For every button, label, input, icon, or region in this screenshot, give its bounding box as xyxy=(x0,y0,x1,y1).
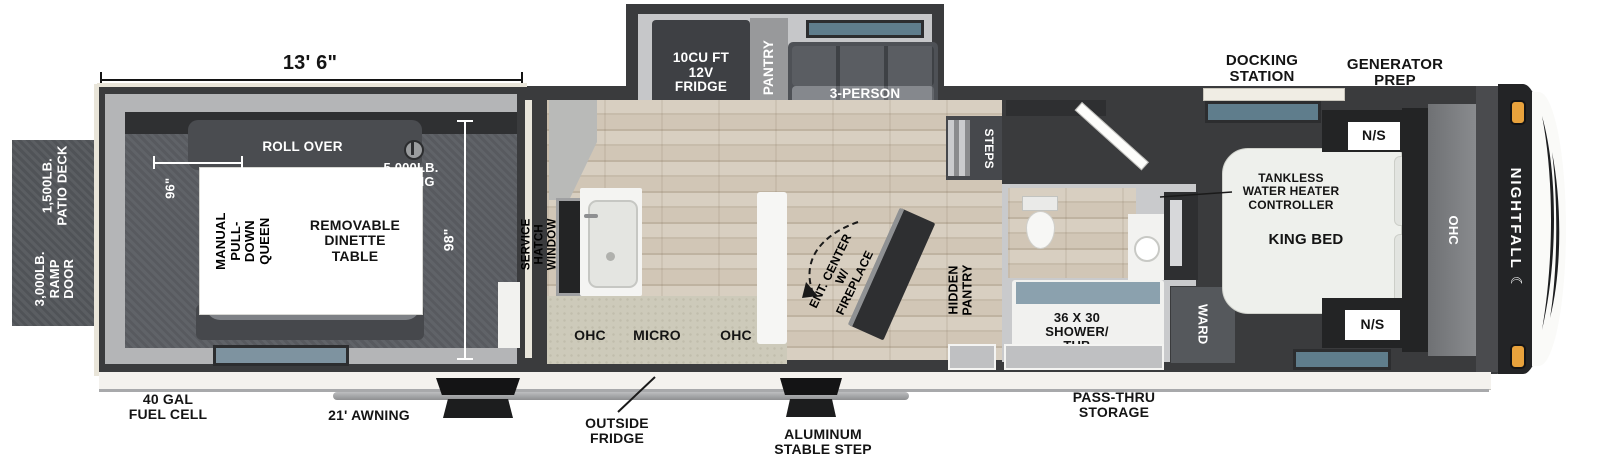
king-bed-label: KING BED xyxy=(1248,230,1364,250)
marker-light-top xyxy=(1510,100,1526,125)
fuel-cell-label: 40 GAL FUEL CELL xyxy=(110,390,226,424)
stable-step-upper xyxy=(780,378,842,395)
tankless-label: TANKLESS WATER HEATER CONTROLLER xyxy=(1228,170,1354,214)
micro-label: MICRO xyxy=(624,326,690,346)
garage-width-dimension: 98" xyxy=(436,215,462,265)
d-ring-icon-bar xyxy=(411,141,414,155)
vanity-sink-bowl xyxy=(1134,236,1160,262)
sink-drain xyxy=(606,252,615,261)
toilet-tank xyxy=(1022,196,1058,211)
pass-thru-compartment-left xyxy=(948,344,996,370)
bathroom-top-wall xyxy=(1002,176,1200,184)
patio-deck-label: 1,500LB. PATIO DECK xyxy=(14,142,96,230)
bedroom-ohc-label: OHC xyxy=(1428,104,1478,356)
garage-rear-window xyxy=(213,345,349,366)
garage-width-tick-top xyxy=(457,120,473,122)
dinette-label: REMOVABLE DINETTE TABLE xyxy=(295,196,415,286)
kitchen-island xyxy=(757,192,787,344)
nose-swoosh-graphics xyxy=(1532,92,1566,366)
steps-label: STEPS xyxy=(976,120,1000,178)
bed-width-dimension: 96" xyxy=(160,168,182,208)
garage-length-dimension: 13' 6" xyxy=(230,52,390,74)
marker-light-bottom xyxy=(1510,344,1526,369)
storage-step-lower xyxy=(443,399,513,418)
bed-headboard xyxy=(1402,108,1428,352)
bed-width-tick-left xyxy=(153,156,155,169)
queen-bed-label: MANUAL PULL-DOWN QUEEN xyxy=(204,170,282,312)
bed-width-tick-right xyxy=(241,156,243,169)
hall-bedroom-wall xyxy=(1148,96,1156,186)
entry-steps-treads xyxy=(948,120,970,176)
bedroom-window-top xyxy=(1205,101,1321,123)
pass-thru-label: PASS-THRU STORAGE xyxy=(1048,388,1180,422)
floorplan-diagram: 13' 6" 1,500LB. PATIO DECK 3,000LB. RAMP… xyxy=(0,0,1600,458)
moon-icon: ☾ xyxy=(1507,275,1524,290)
pass-thru-compartment-right xyxy=(1004,344,1164,370)
generator-prep-label: GENERATOR PREP xyxy=(1332,55,1458,91)
hidden-pantry-label: HIDDEN PANTRY xyxy=(942,238,980,342)
docking-station-label: DOCKING STATION xyxy=(1198,52,1326,86)
bed-width-dim-line xyxy=(153,162,243,164)
ramp-door-label: 3,000LB. RAMP DOOR xyxy=(14,234,96,324)
garage-width-tick-bottom xyxy=(457,358,473,360)
storage-step-upper xyxy=(436,378,520,395)
brand-name: NIGHTFALL xyxy=(1507,167,1524,269)
awning-label: 21' AWNING xyxy=(300,407,438,425)
ohc-left-label: OHC xyxy=(566,326,614,346)
slideout-window xyxy=(806,20,924,38)
sofa-back-cushions xyxy=(792,46,934,86)
d-ring-icon xyxy=(404,140,424,160)
dimension-line xyxy=(100,79,523,81)
body-cream-trim-left xyxy=(94,84,99,376)
garage-side-door xyxy=(498,282,520,348)
roll-over-bottom-label: ROLL OVER xyxy=(235,296,365,314)
brand-logo: NIGHTFALL☾ xyxy=(1500,104,1530,354)
docking-station-panel xyxy=(1203,88,1345,101)
service-hatch-window-label: SERVICE HATCH WINDOW xyxy=(524,196,556,292)
ent-center-label: ENT. CENTER W/ FIREPLACE xyxy=(800,222,886,332)
refrigerator-label: 10CU FT 12V FRIDGE xyxy=(652,38,750,108)
ohc-right-label: OHC xyxy=(712,326,760,346)
ns-bottom-label: N/S xyxy=(1345,310,1400,340)
vanity-mirror xyxy=(1170,200,1182,266)
outside-fridge-label: OUTSIDE FRIDGE xyxy=(568,414,666,448)
sink-faucet xyxy=(584,214,598,218)
body-cream-trim-top xyxy=(97,83,527,87)
shower-tub-water xyxy=(1016,282,1160,304)
stable-step-lower xyxy=(786,399,836,417)
ns-top-label: N/S xyxy=(1348,122,1400,150)
stable-step-label: ALUMINUM STABLE STEP xyxy=(752,426,894,458)
bedroom-window-bottom xyxy=(1293,349,1391,370)
garage-width-dim-line xyxy=(464,120,466,360)
front-cap-white-nose xyxy=(1532,92,1566,366)
d-ring-label: 5,000LB. D-RING xyxy=(375,158,447,192)
roll-over-top-label: ROLL OVER xyxy=(240,138,365,156)
